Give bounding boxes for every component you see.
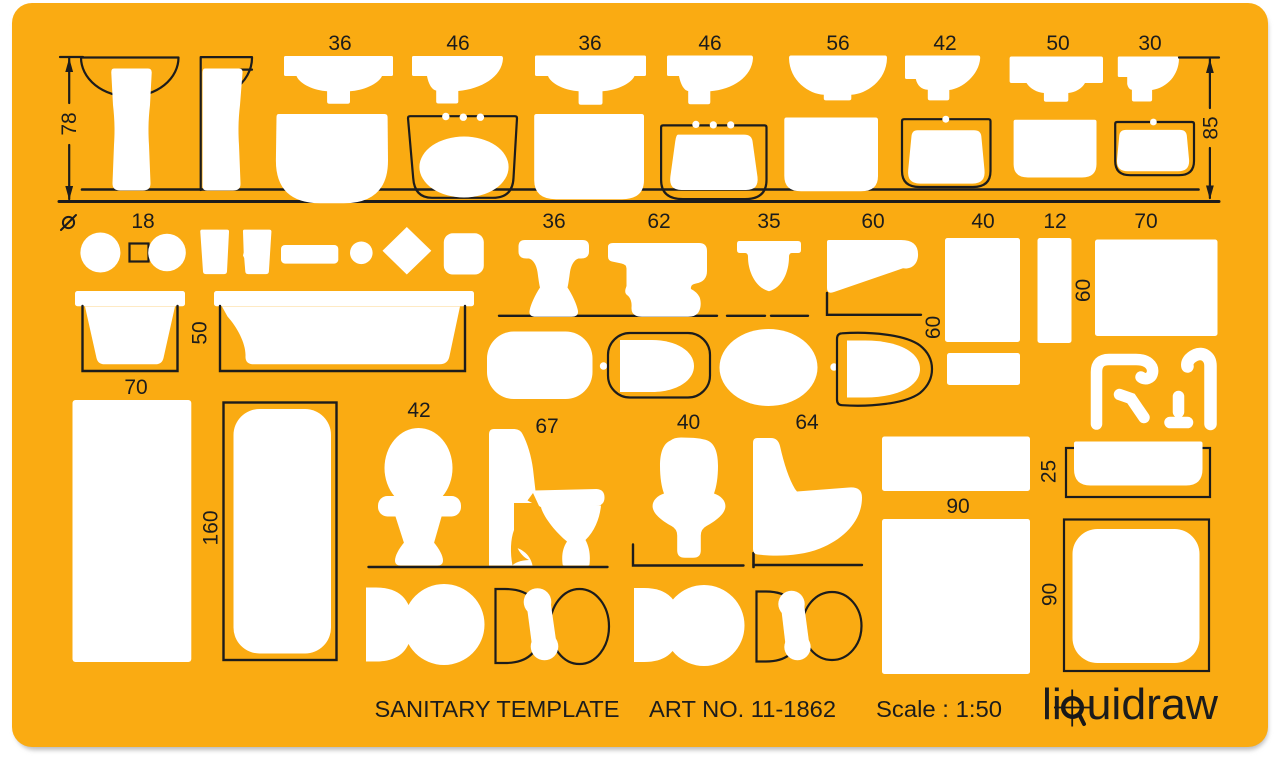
svg-text:78: 78 <box>58 112 81 135</box>
svg-text:70: 70 <box>124 376 147 399</box>
svg-text:46: 46 <box>446 32 469 55</box>
svg-text:12: 12 <box>1043 210 1066 233</box>
svg-text:60: 60 <box>861 210 884 233</box>
svg-text:42: 42 <box>407 399 430 422</box>
svg-text:64: 64 <box>795 411 819 434</box>
svg-text:SANITARY TEMPLATE: SANITARY TEMPLATE <box>375 696 620 722</box>
svg-text:46: 46 <box>698 32 721 55</box>
svg-text:60: 60 <box>1072 279 1095 302</box>
svg-text:62: 62 <box>647 210 670 233</box>
svg-text:18: 18 <box>131 210 154 233</box>
svg-text:90: 90 <box>946 495 969 518</box>
svg-text:36: 36 <box>542 210 565 233</box>
svg-text:85: 85 <box>1200 116 1223 139</box>
svg-text:40: 40 <box>677 411 700 434</box>
svg-text:30: 30 <box>1138 32 1161 55</box>
svg-text:35: 35 <box>757 210 780 233</box>
svg-text:50: 50 <box>189 321 212 344</box>
svg-text:90: 90 <box>1039 583 1062 606</box>
svg-text:Scale : 1:50: Scale : 1:50 <box>876 696 1002 722</box>
svg-text:40: 40 <box>971 210 994 233</box>
svg-text:56: 56 <box>826 32 849 55</box>
svg-text:ART NO. 11-1862: ART NO. 11-1862 <box>649 696 836 722</box>
svg-text:25: 25 <box>1038 460 1061 483</box>
svg-text:50: 50 <box>1046 32 1069 55</box>
svg-text:160: 160 <box>200 510 223 545</box>
svg-text:36: 36 <box>578 32 601 55</box>
svg-text:60: 60 <box>922 316 945 339</box>
svg-text:42: 42 <box>933 32 956 55</box>
svg-text:36: 36 <box>328 32 351 55</box>
svg-text:70: 70 <box>1134 210 1157 233</box>
svg-text:67: 67 <box>535 415 558 438</box>
